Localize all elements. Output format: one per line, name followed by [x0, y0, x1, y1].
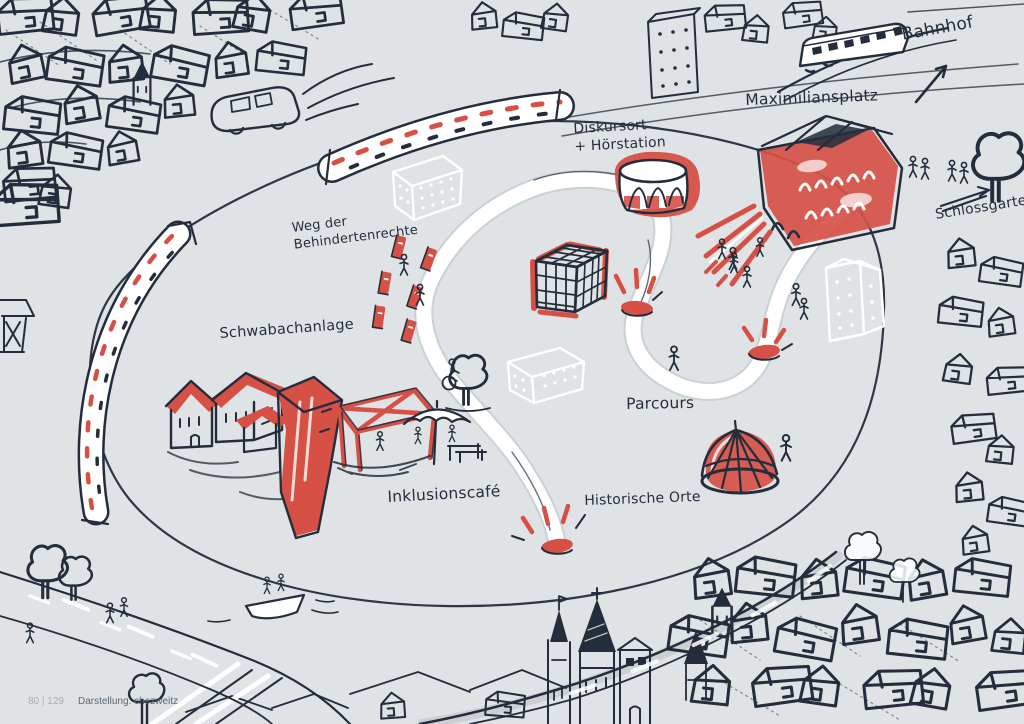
cage-cube: [533, 244, 607, 316]
page-number: 80 | 129: [28, 696, 64, 707]
city-sketch-top-left: [0, 0, 344, 352]
credit-text: Darstellung: chezweitz: [78, 696, 178, 707]
city-sketch-right: [938, 237, 1024, 555]
ghost-tower: [826, 259, 884, 341]
dome-tent: [702, 421, 778, 493]
inklusionscafe-pavilion: [334, 388, 436, 476]
ghost-building-mid: [508, 348, 584, 403]
sketch-map-canvas: [0, 0, 1024, 724]
label-diskursort-hoerstation: Diskursort + Hörstation: [573, 115, 666, 156]
sketch-map-page: Bahnhof Maximiliansplatz Schlossgarten D…: [0, 0, 1024, 724]
label-parcours: Parcours: [626, 393, 694, 414]
church-skyline: [129, 588, 708, 724]
tree-sketch-top-right: [973, 133, 1024, 201]
rotunda-diskursort: [615, 152, 700, 217]
maximiliansplatz-building: [758, 116, 902, 250]
city-sketch-top-edge: [470, 0, 1024, 98]
schwabachanlage-houses: [166, 372, 342, 538]
tree-sketch-cafe: [446, 355, 490, 411]
page-footer: 80 | 129Darstellung: chezweitz: [28, 696, 178, 707]
road-sketch-bottom: [420, 552, 846, 724]
wall-band-top: [326, 90, 562, 184]
wall-band-left: [82, 222, 196, 524]
